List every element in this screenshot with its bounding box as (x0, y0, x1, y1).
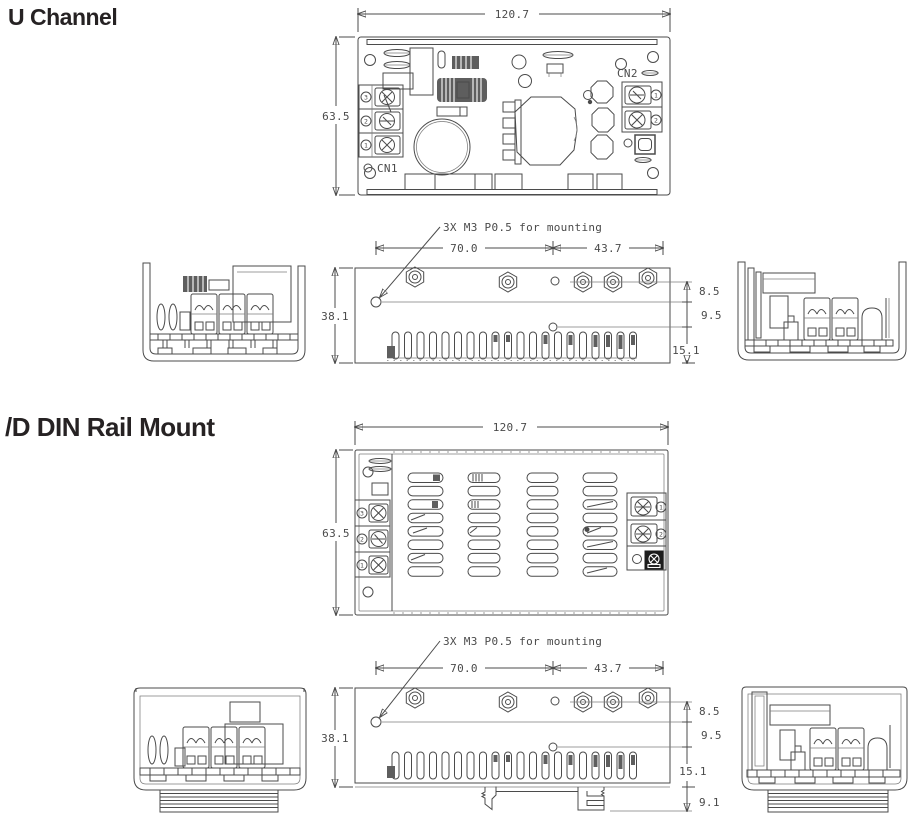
heatsink-end (748, 268, 754, 340)
cover-inner (359, 454, 664, 611)
terminal-block-ends (191, 294, 273, 334)
din-terminal-2: 2 (360, 536, 364, 544)
dim-label-8-5: 8.5 (699, 705, 720, 718)
section-title-u-channel: U Channel (8, 4, 117, 31)
dim-overall-height: 63.5 (322, 37, 355, 195)
cn2-label: CN2 (617, 67, 638, 80)
cn2-terminal-2: 2 (654, 117, 658, 125)
fuse-hole (624, 139, 632, 147)
terminal-block-ends (810, 728, 864, 770)
view-din-end-left (120, 680, 325, 832)
cover-outline (355, 450, 668, 615)
din-rail-fins (160, 790, 278, 812)
cn1-terminal-1: 1 (364, 142, 368, 150)
mounting-note: 3X M3 P0.5 for mounting (443, 221, 602, 234)
dim-depth: 38.1 (321, 688, 353, 787)
vent-slots (387, 332, 637, 361)
dim-label-15-1: 15.1 (672, 344, 700, 357)
bulk-capacitor (414, 119, 470, 175)
view-din-end-right (735, 680, 915, 832)
transformer (515, 97, 577, 165)
section-title-din-rail: /D DIN Rail Mount (5, 412, 215, 443)
bottom-tabs (405, 174, 622, 190)
end-plate-details (363, 459, 391, 598)
cn1-terminal-3: 3 (364, 94, 368, 102)
capacitor-end (862, 308, 882, 340)
terminal-block-ends (183, 727, 265, 768)
mounting-holes (371, 697, 559, 751)
baseplate (747, 770, 900, 777)
dim-label-9-5: 9.5 (701, 729, 722, 742)
din-cn2-terminal-1: 1 (659, 504, 663, 512)
leader-line (380, 227, 440, 297)
dim-mount-spans: 70.0 43.7 (376, 241, 663, 255)
din-clip (482, 787, 604, 811)
dim-label-depth: 38.1 (321, 732, 349, 745)
cn2-terminal-1: 1 (654, 92, 658, 100)
dim-right-offsets: 8.5 9.5 15.1 9.1 (679, 702, 722, 811)
view-din-side: 3X M3 P0.5 for mounting 70.0 43.7 38.1 (325, 618, 720, 832)
dim-right-offsets: 8.5 9.5 15.1 (672, 282, 722, 363)
dim-label-9-1: 9.1 (699, 796, 720, 809)
top-wall-hatch (367, 40, 657, 45)
dim-label-depth: 38.1 (321, 310, 349, 323)
vent-slot-grid (408, 473, 617, 576)
cn1-label: CN1 (377, 162, 398, 175)
din-terminal-3: 3 (360, 510, 364, 518)
cn2-terminal-block: CN2 1 2 (616, 59, 663, 163)
dim-mount-spans: 70.0 43.7 (376, 661, 663, 675)
terminal-block-ends (804, 298, 858, 340)
capacitor-end (868, 738, 887, 770)
hex-standoffs (406, 267, 656, 292)
end-internals (747, 692, 900, 783)
bottom-wall-hatch (367, 190, 657, 195)
mounting-holes (371, 277, 559, 331)
dim-label-15-1: 15.1 (679, 765, 707, 778)
cn1-terminal-2: 2 (364, 118, 368, 126)
cn1-screws (375, 88, 400, 154)
view-din-top: 120.7 63.5 3 2 1 (325, 413, 675, 620)
fuse-hole (633, 555, 642, 564)
dim-label-43: 43.7 (594, 662, 622, 675)
cn1-terminal-block: 3 2 1 (355, 500, 390, 577)
pins (163, 340, 277, 348)
view-u-end-right (728, 248, 915, 378)
baseplate (150, 334, 298, 340)
cn1-terminal-block: 3 2 1 CN1 (359, 85, 403, 175)
mounting-note: 3X M3 P0.5 for mounting (443, 635, 602, 648)
view-u-top: 120.7 63.5 3 2 1 (325, 2, 675, 207)
dim-overall-width: 120.7 (355, 421, 668, 445)
dim-label-43: 43.7 (594, 242, 622, 255)
output-capacitors (591, 81, 614, 159)
dim-label-70: 70.0 (450, 242, 478, 255)
chassis-outline (358, 37, 670, 195)
vent-slots (387, 752, 637, 779)
dim-label-8-5: 8.5 (699, 285, 720, 298)
view-u-side: 3X M3 P0.5 for mounting 70.0 43.7 38.1 (325, 208, 720, 393)
end-internals (140, 702, 300, 781)
end-internals (150, 266, 298, 354)
cn2-terminal-block: 1 2 (627, 493, 666, 570)
dim-overall-height: 63.5 (322, 450, 353, 615)
dim-label-70: 70.0 (450, 662, 478, 675)
bulk-capacitor-inner (417, 122, 468, 173)
dim-label-width: 120.7 (493, 421, 528, 434)
dim-label-height: 63.5 (322, 527, 350, 540)
din-cn2-terminal-2: 2 (659, 531, 663, 539)
dim-overall-width: 120.7 (358, 8, 670, 32)
baseplate (745, 340, 893, 346)
dim-label-height: 63.5 (322, 110, 350, 123)
mechanical-drawing-page: U Channel /D DIN Rail Mount 120.7 63.5 (0, 0, 915, 832)
end-internals (745, 268, 893, 352)
din-rail-fins (768, 790, 888, 812)
dim-depth: 38.1 (321, 268, 353, 363)
din-terminal-1: 1 (360, 562, 364, 570)
hex-standoffs (406, 688, 656, 712)
dim-label-9-5: 9.5 (701, 309, 722, 322)
view-u-end-left (133, 250, 318, 375)
dim-label-width: 120.7 (495, 8, 530, 21)
heatsink-end (752, 692, 767, 770)
center-components (503, 52, 593, 166)
